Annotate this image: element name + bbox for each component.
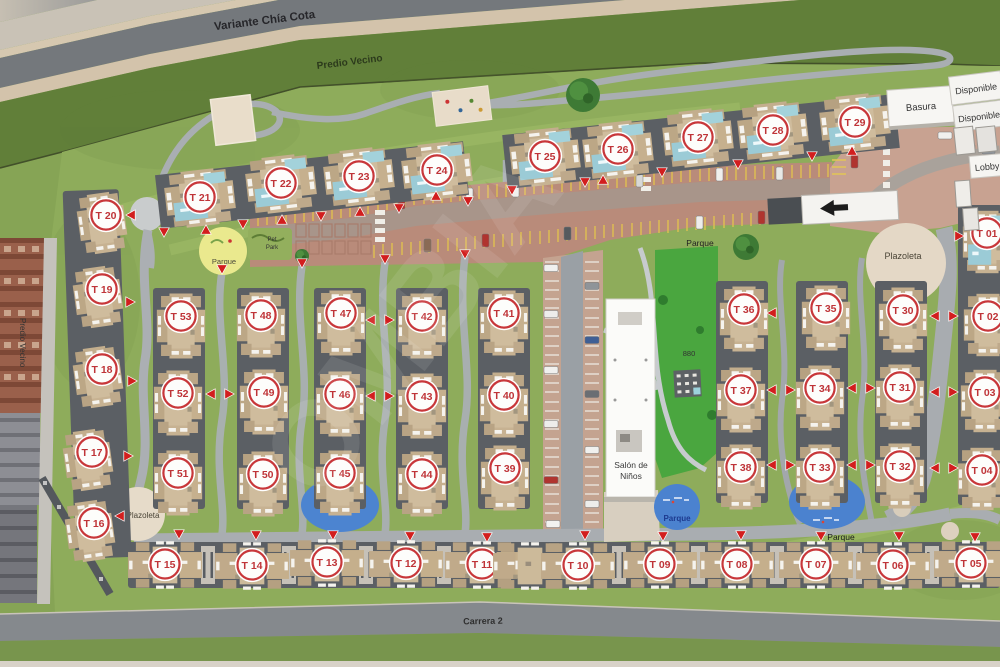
svg-text:T 30: T 30 bbox=[892, 305, 913, 317]
svg-text:Plazoleta: Plazoleta bbox=[127, 511, 160, 520]
svg-text:T 23: T 23 bbox=[348, 171, 369, 183]
svg-text:T 14: T 14 bbox=[241, 560, 262, 572]
svg-text:T 13: T 13 bbox=[316, 557, 337, 569]
svg-text:T 31: T 31 bbox=[889, 382, 910, 394]
svg-text:T 02: T 02 bbox=[977, 311, 998, 323]
svg-text:T 01: T 01 bbox=[976, 228, 997, 240]
svg-text:Carrera 2: Carrera 2 bbox=[463, 616, 503, 627]
svg-text:Parque: Parque bbox=[827, 532, 855, 542]
svg-text:T 20: T 20 bbox=[95, 210, 116, 222]
svg-text:T 07: T 07 bbox=[805, 559, 826, 571]
svg-text:Salón de: Salón de bbox=[614, 460, 648, 470]
svg-text:T 25: T 25 bbox=[534, 151, 555, 163]
svg-text:T 38: T 38 bbox=[730, 462, 751, 474]
svg-text:T 48: T 48 bbox=[250, 310, 271, 322]
svg-text:T 34: T 34 bbox=[809, 383, 830, 395]
svg-text:T 29: T 29 bbox=[844, 117, 865, 129]
svg-text:Pet: Pet bbox=[267, 237, 276, 243]
svg-text:Park: Park bbox=[266, 245, 279, 251]
svg-text:T 40: T 40 bbox=[493, 390, 514, 402]
svg-text:T 03: T 03 bbox=[974, 387, 995, 399]
svg-text:Parque: Parque bbox=[663, 514, 691, 523]
svg-text:T 22: T 22 bbox=[270, 178, 291, 190]
svg-text:T 35: T 35 bbox=[815, 303, 836, 315]
svg-text:Niños: Niños bbox=[620, 471, 642, 481]
svg-text:T 39: T 39 bbox=[494, 463, 515, 475]
svg-text:T 05: T 05 bbox=[960, 558, 981, 570]
svg-text:T 15: T 15 bbox=[154, 559, 175, 571]
svg-text:Predio Vecino: Predio Vecino bbox=[18, 318, 27, 368]
svg-text:T 36: T 36 bbox=[733, 304, 754, 316]
svg-text:T 52: T 52 bbox=[167, 388, 188, 400]
svg-text:T 27: T 27 bbox=[687, 132, 708, 144]
svg-text:T 28: T 28 bbox=[762, 125, 783, 137]
svg-text:Plazoleta: Plazoleta bbox=[884, 251, 921, 261]
svg-text:T 08: T 08 bbox=[726, 559, 747, 571]
svg-text:Parque: Parque bbox=[686, 238, 714, 248]
svg-text:T 32: T 32 bbox=[889, 461, 910, 473]
svg-text:Basura: Basura bbox=[906, 101, 938, 114]
svg-text:T 10: T 10 bbox=[567, 560, 588, 572]
svg-text:T 06: T 06 bbox=[882, 560, 903, 572]
svg-text:T 53: T 53 bbox=[170, 311, 191, 323]
svg-text:T 26: T 26 bbox=[607, 144, 628, 156]
svg-text:T 18: T 18 bbox=[91, 364, 112, 376]
svg-text:T 21: T 21 bbox=[189, 192, 210, 204]
svg-text:T 17: T 17 bbox=[81, 447, 102, 459]
svg-text:T 04: T 04 bbox=[971, 465, 992, 477]
svg-text:T 37: T 37 bbox=[730, 385, 751, 397]
svg-text:T 33: T 33 bbox=[809, 462, 830, 474]
svg-text:T 11: T 11 bbox=[472, 559, 493, 571]
svg-text:T 19: T 19 bbox=[91, 284, 112, 296]
svg-text:880: 880 bbox=[683, 349, 696, 358]
svg-text:T 09: T 09 bbox=[649, 559, 670, 571]
svg-text:T 44: T 44 bbox=[411, 469, 432, 481]
svg-text:T 16: T 16 bbox=[83, 518, 104, 530]
svg-text:T 51: T 51 bbox=[167, 468, 188, 480]
svg-text:T 12: T 12 bbox=[395, 558, 416, 570]
svg-text:T 50: T 50 bbox=[252, 469, 273, 481]
